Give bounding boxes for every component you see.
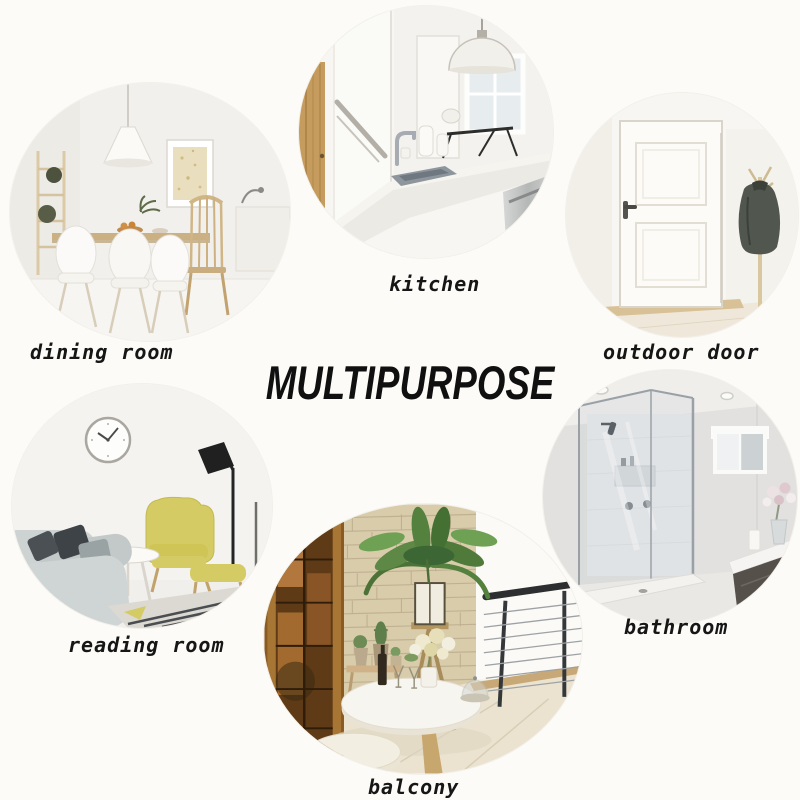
photo-reading-room (12, 384, 272, 628)
door (620, 121, 722, 307)
stool (308, 733, 400, 774)
label-reading-room: reading room (68, 633, 225, 657)
ottoman (190, 564, 246, 582)
shower-glass (579, 390, 693, 596)
page-title: MULTIPURPOSE (266, 359, 555, 406)
product-collage: MULTIPURPOSE dining room kitchen outdoor… (0, 0, 800, 800)
bathroom-illustration (543, 370, 797, 624)
label-dining-room: dining room (30, 340, 173, 364)
label-outdoor-door: outdoor door (603, 340, 760, 364)
wall-clock-icon (86, 418, 130, 462)
vase (421, 667, 437, 687)
window (711, 426, 769, 472)
candle (749, 530, 760, 550)
kitchen-illustration (299, 6, 553, 258)
recessed-light (594, 386, 608, 394)
label-kitchen: kitchen (389, 272, 480, 296)
door-handle (623, 201, 628, 219)
dining-room-illustration (10, 83, 290, 341)
balcony-illustration (264, 504, 582, 774)
bottle (378, 654, 387, 685)
label-balcony: balcony (368, 775, 459, 799)
photo-bathroom (543, 370, 797, 624)
reading-room-illustration (12, 384, 272, 628)
label-bathroom: bathroom (624, 615, 728, 639)
photo-kitchen (299, 6, 553, 258)
glass-door (266, 508, 343, 769)
jacket (739, 181, 780, 255)
photo-dining-room (10, 83, 290, 341)
photo-balcony (264, 504, 582, 774)
photo-outdoor-door (566, 93, 798, 337)
wood-door-strip (299, 62, 325, 258)
outdoor-door-illustration (566, 93, 798, 337)
